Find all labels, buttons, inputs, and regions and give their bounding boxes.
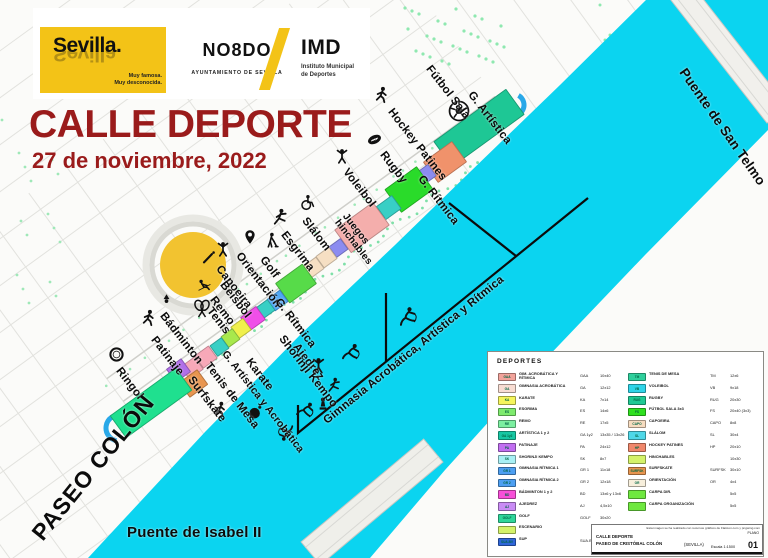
landmark-label: Puente de Isabel II bbox=[127, 525, 262, 540]
legend-row: AJAJEDREZAJ4,5x10 bbox=[498, 501, 624, 513]
gymnast-leap-icon bbox=[293, 398, 316, 421]
legend-sport-size: 20x30 bbox=[730, 397, 756, 402]
legend-sport-size: 12x6 bbox=[730, 373, 756, 378]
legend-row: BDBÁDMINTON 1 y 2BD13x6 y 13x6 bbox=[498, 489, 624, 501]
wheelchair-icon bbox=[299, 194, 316, 211]
legend-sport-name: VOLEIBOL bbox=[649, 384, 705, 388]
baseball-bat-icon bbox=[201, 250, 216, 265]
legend-sport-size: 5x5 bbox=[730, 503, 756, 508]
shuttlecock-icon bbox=[160, 293, 173, 306]
legend-row: HINCHABLES10x30 bbox=[628, 454, 754, 466]
legend-swatch: RUG bbox=[628, 396, 646, 405]
fencer-icon bbox=[270, 208, 289, 227]
rower-icon bbox=[196, 278, 213, 295]
legend-swatch: HP bbox=[628, 443, 646, 452]
legend-sport-code: GR 1 bbox=[580, 467, 600, 472]
legend-sport-code: SL bbox=[710, 432, 730, 437]
legend-swatch bbox=[628, 490, 646, 499]
legend-sport-name: SHORINJI KEMPO bbox=[519, 455, 575, 459]
legend-row: FSFÚTBOL SALA 3x3FS20x40 (3x3) bbox=[628, 406, 754, 418]
imd-subtitle: Instituto Municipalde Deportes bbox=[301, 64, 354, 80]
title-block-bar bbox=[592, 552, 762, 555]
legend-sport-size: 30x10 bbox=[730, 467, 756, 472]
legend-sport-name: HOCKEY PATINES bbox=[649, 443, 705, 447]
legend-sport-name: AJEDREZ bbox=[519, 502, 575, 506]
ringol-ring-icon bbox=[108, 346, 125, 363]
legend-swatch: TM bbox=[628, 373, 646, 382]
legend-swatch: GA bbox=[498, 384, 516, 393]
legend-swatch: SL bbox=[628, 431, 646, 440]
legend-swatch: GR 1 bbox=[498, 467, 516, 476]
legend-row: GR 2GIMNASIA RÍTMICA 2GR 212x18 bbox=[498, 477, 624, 489]
legend-sport-size: 13x35 / 13x26 bbox=[600, 432, 626, 437]
legend-sport-name: KARATE bbox=[519, 396, 575, 400]
legend-sport-name: ESGRIMA bbox=[519, 407, 575, 411]
legend-sport-name: ORIENTACIÓN bbox=[649, 478, 705, 482]
legend-sport-code: OR bbox=[710, 479, 730, 484]
legend-sport-code: BD bbox=[580, 491, 600, 496]
nosdo-subtitle: AYUNTAMIENTO DE SEVILLA bbox=[179, 70, 295, 76]
legend-swatch: SK bbox=[498, 455, 516, 464]
legend-row: PAPATINAJEPA24x12 bbox=[498, 442, 624, 454]
legend-sport-size: 10x30 bbox=[730, 456, 756, 461]
legend-row: GR 1GIMNASIA RÍTMICA 1GR 111x18 bbox=[498, 465, 624, 477]
sevilla-wordmark-reflection: Sevilla. bbox=[53, 51, 121, 65]
legend-swatch: FS bbox=[628, 408, 646, 417]
legend-swatch: AJ bbox=[498, 502, 516, 511]
legend-sport-code: ES bbox=[580, 408, 600, 413]
hockey-player-icon bbox=[372, 86, 391, 105]
legend-swatch bbox=[498, 526, 516, 535]
legend-sport-name: SUP bbox=[519, 537, 575, 541]
legend-sport-size: 24x12 bbox=[600, 444, 626, 449]
capoeira-icon bbox=[214, 241, 232, 259]
legend-swatch: KA bbox=[498, 396, 516, 405]
legend-sport-size: 4x4 bbox=[730, 479, 756, 484]
legend-sport-size: 4,5x10 bbox=[600, 503, 626, 508]
legend-sport-code: AJ bbox=[580, 503, 600, 508]
legend-sport-size: 30x4 bbox=[730, 432, 756, 437]
legend-sport-name: GOLF bbox=[519, 514, 575, 518]
legend-row: CARPA DIR.5x5 bbox=[628, 489, 754, 501]
legend-column-right: TMTENIS DE MESATM12x6VBVOLEIBOLVB9x18RUG… bbox=[628, 371, 754, 513]
legend-swatch bbox=[628, 455, 646, 464]
legend-sport-code: SURFSK bbox=[710, 467, 730, 472]
legend-sport-name: CAPOEIRA bbox=[649, 419, 705, 423]
legend-sport-size: 11x18 bbox=[600, 467, 626, 472]
legend-sport-code: HP bbox=[710, 444, 730, 449]
legend-swatch: GOLF bbox=[498, 514, 516, 523]
legend-column-left: GAAGIM. ACROBÁTICA Y RÍTMICAGAA10x40GAGI… bbox=[498, 371, 624, 548]
legend-sport-name: REMO bbox=[519, 419, 575, 423]
legend-row: SLSLÁLOMSL30x4 bbox=[628, 430, 754, 442]
legend-swatch: VB bbox=[628, 384, 646, 393]
legend-sport-code: GAA bbox=[580, 373, 600, 378]
legend-sport-name: RUGBY bbox=[649, 396, 705, 400]
legend-sport-code: GOLF bbox=[580, 515, 600, 520]
rugby-ball-icon bbox=[366, 131, 383, 148]
legend-sport-name: CARPA DIR. bbox=[649, 490, 705, 494]
legend-row: TMTENIS DE MESATM12x6 bbox=[628, 371, 754, 383]
legend-sport-name: GIM. ACROBÁTICA Y RÍTMICA bbox=[519, 372, 575, 381]
skater-icon bbox=[139, 309, 158, 328]
legend-row: SKSHORINJI KEMPOSK8x7 bbox=[498, 454, 624, 466]
sevilla-tagline: Muy famosa.Muy desconocida. bbox=[100, 73, 162, 87]
legend-row: GA 1y2ARTÍSTICA 1 y 2GA 1y213x35 / 13x26 bbox=[498, 430, 624, 442]
legend-sport-name: CARPA ORGANIZACIÓN bbox=[649, 502, 705, 506]
legend-sport-name: SLÁLOM bbox=[649, 431, 705, 435]
legend-sport-name: TENIS DE MESA bbox=[649, 372, 705, 376]
location-pin-icon bbox=[242, 229, 258, 245]
rhythmic-gymnast-icon bbox=[340, 342, 361, 363]
golfer-icon bbox=[262, 232, 280, 250]
legend-swatch: CAPO bbox=[628, 420, 646, 429]
legend-row: CARPA ORGANIZACIÓN5x5 bbox=[628, 501, 754, 513]
legend-swatch: OR bbox=[628, 479, 646, 488]
legend-sport-size: 8x8 bbox=[730, 420, 756, 425]
legend-row: GAAGIM. ACROBÁTICA Y RÍTMICAGAA10x40 bbox=[498, 371, 624, 383]
legend-swatch bbox=[628, 502, 646, 511]
legend-sport-name: PATINAJE bbox=[519, 443, 575, 447]
calle-deporte-poster: Fútbol SalaHockey PatinesRugbyVoleibolG.… bbox=[0, 0, 768, 558]
legend-sport-code: GA 1y2 bbox=[580, 432, 600, 437]
legend-row: CAPOCAPOEIRACAPO8x8 bbox=[628, 418, 754, 430]
legend-sport-size: 20x40 (3x3) bbox=[730, 408, 756, 413]
drawing-scale: Escala 1:1500 bbox=[711, 545, 735, 549]
project-name: CALLE DEPORTEPASEO DE CRISTÓBAL COLÓN bbox=[596, 534, 662, 547]
legend-row: GAGIMNASIA ACROBÁTICAGA12x12 bbox=[498, 383, 624, 395]
legend-sport-code: RE bbox=[580, 420, 600, 425]
legend-sport-code: TM bbox=[710, 373, 730, 378]
imd-logo: IMD bbox=[301, 36, 341, 60]
legend-sport-code: PA bbox=[580, 444, 600, 449]
legend-sport-size: 7x14 bbox=[600, 397, 626, 402]
attribution-note: Esta imagen se ha realizado con recursos… bbox=[596, 526, 760, 530]
legend-row: ORORIENTACIÓNOR4x4 bbox=[628, 477, 754, 489]
legend-row: HPHOCKEY PATINESHP20x10 bbox=[628, 442, 754, 454]
event-date: 27 de noviembre, 2022 bbox=[32, 148, 267, 174]
legend-sport-name: GIMNASIA RÍTMICA 2 bbox=[519, 478, 575, 482]
legend-swatch: GAA bbox=[498, 373, 516, 382]
legend-sport-code: SK bbox=[580, 456, 600, 461]
legend-sport-size: 20x10 bbox=[730, 444, 756, 449]
legend-sport-size: 17x5 bbox=[600, 420, 626, 425]
legend-sport-size: 30x20 bbox=[600, 515, 626, 520]
legend-swatch: SUA.BV bbox=[498, 538, 516, 547]
volleyball-player-icon bbox=[333, 148, 351, 166]
legend-sport-code: VB bbox=[710, 385, 730, 390]
legend-sport-name: SURFSKATE bbox=[649, 466, 705, 470]
legend-row: GOLFGOLFGOLF30x20 bbox=[498, 513, 624, 525]
logo-card: Sevilla. Sevilla. Muy famosa.Muy descono… bbox=[33, 8, 370, 99]
drawing-title-block: Esta imagen se ha realizado con recursos… bbox=[591, 524, 763, 555]
legend-sport-code: FS bbox=[710, 408, 730, 413]
legend-swatch: SURFSK bbox=[628, 467, 646, 476]
legend-sport-size: 14x6 bbox=[600, 408, 626, 413]
legend-swatch: ES bbox=[498, 408, 516, 417]
plano-number: 01 bbox=[748, 540, 758, 550]
plano-label: PLANO bbox=[748, 531, 760, 535]
legend-swatch: GR 2 bbox=[498, 479, 516, 488]
legend-sport-name: GIMNASIA RÍTMICA 1 bbox=[519, 466, 575, 470]
legend-swatch: PA bbox=[498, 443, 516, 452]
legend-sport-name: HINCHABLES bbox=[649, 455, 705, 459]
legend-sport-name: FÚTBOL SALA 3x3 bbox=[649, 407, 705, 411]
legend-swatch: GA 1y2 bbox=[498, 431, 516, 440]
legend-sport-code: RUG bbox=[710, 397, 730, 402]
legend-row: VBVOLEIBOLVB9x18 bbox=[628, 383, 754, 395]
legend-sport-size: 5x5 bbox=[730, 491, 756, 496]
legend-swatch: RE bbox=[498, 420, 516, 429]
legend-sport-name: BÁDMINTON 1 y 2 bbox=[519, 490, 575, 494]
legend-row: KAKARATEKA7x14 bbox=[498, 395, 624, 407]
legend-title: DEPORTES bbox=[497, 358, 542, 365]
legend-sport-code: CAPO bbox=[710, 420, 730, 425]
legend-sport-size: 12x12 bbox=[600, 385, 626, 390]
legend-sport-size: 9x18 bbox=[730, 385, 756, 390]
sevilla-logo: Sevilla. Sevilla. Muy famosa.Muy descono… bbox=[40, 27, 166, 93]
legend-sport-code: GA bbox=[580, 385, 600, 390]
legend-sport-size: 8x7 bbox=[600, 456, 626, 461]
legend-sport-name: ARTÍSTICA 1 y 2 bbox=[519, 431, 575, 435]
legend-row: ESESGRIMAES14x6 bbox=[498, 406, 624, 418]
legend-sport-size: 13x6 y 13x6 bbox=[600, 491, 626, 496]
legend-sport-size: 10x40 bbox=[600, 373, 626, 378]
legend-row: REREMORE17x5 bbox=[498, 418, 624, 430]
page-title: CALLE DEPORTE bbox=[29, 103, 352, 147]
legend-swatch: BD bbox=[498, 490, 516, 499]
legend-sport-size: 12x18 bbox=[600, 479, 626, 484]
legend-sport-code: KA bbox=[580, 397, 600, 402]
legend-row: RUGRUGBYRUG20x30 bbox=[628, 395, 754, 407]
project-city: (SEVILLA) bbox=[684, 542, 704, 547]
legend-row: SURFSKSURFSKATESURFSK30x10 bbox=[628, 465, 754, 477]
legend-sport-name: ESCENARIO bbox=[519, 525, 575, 529]
legend-sport-name: GIMNASIA ACROBÁTICA bbox=[519, 384, 575, 388]
legend-sport-code: GR 2 bbox=[580, 479, 600, 484]
